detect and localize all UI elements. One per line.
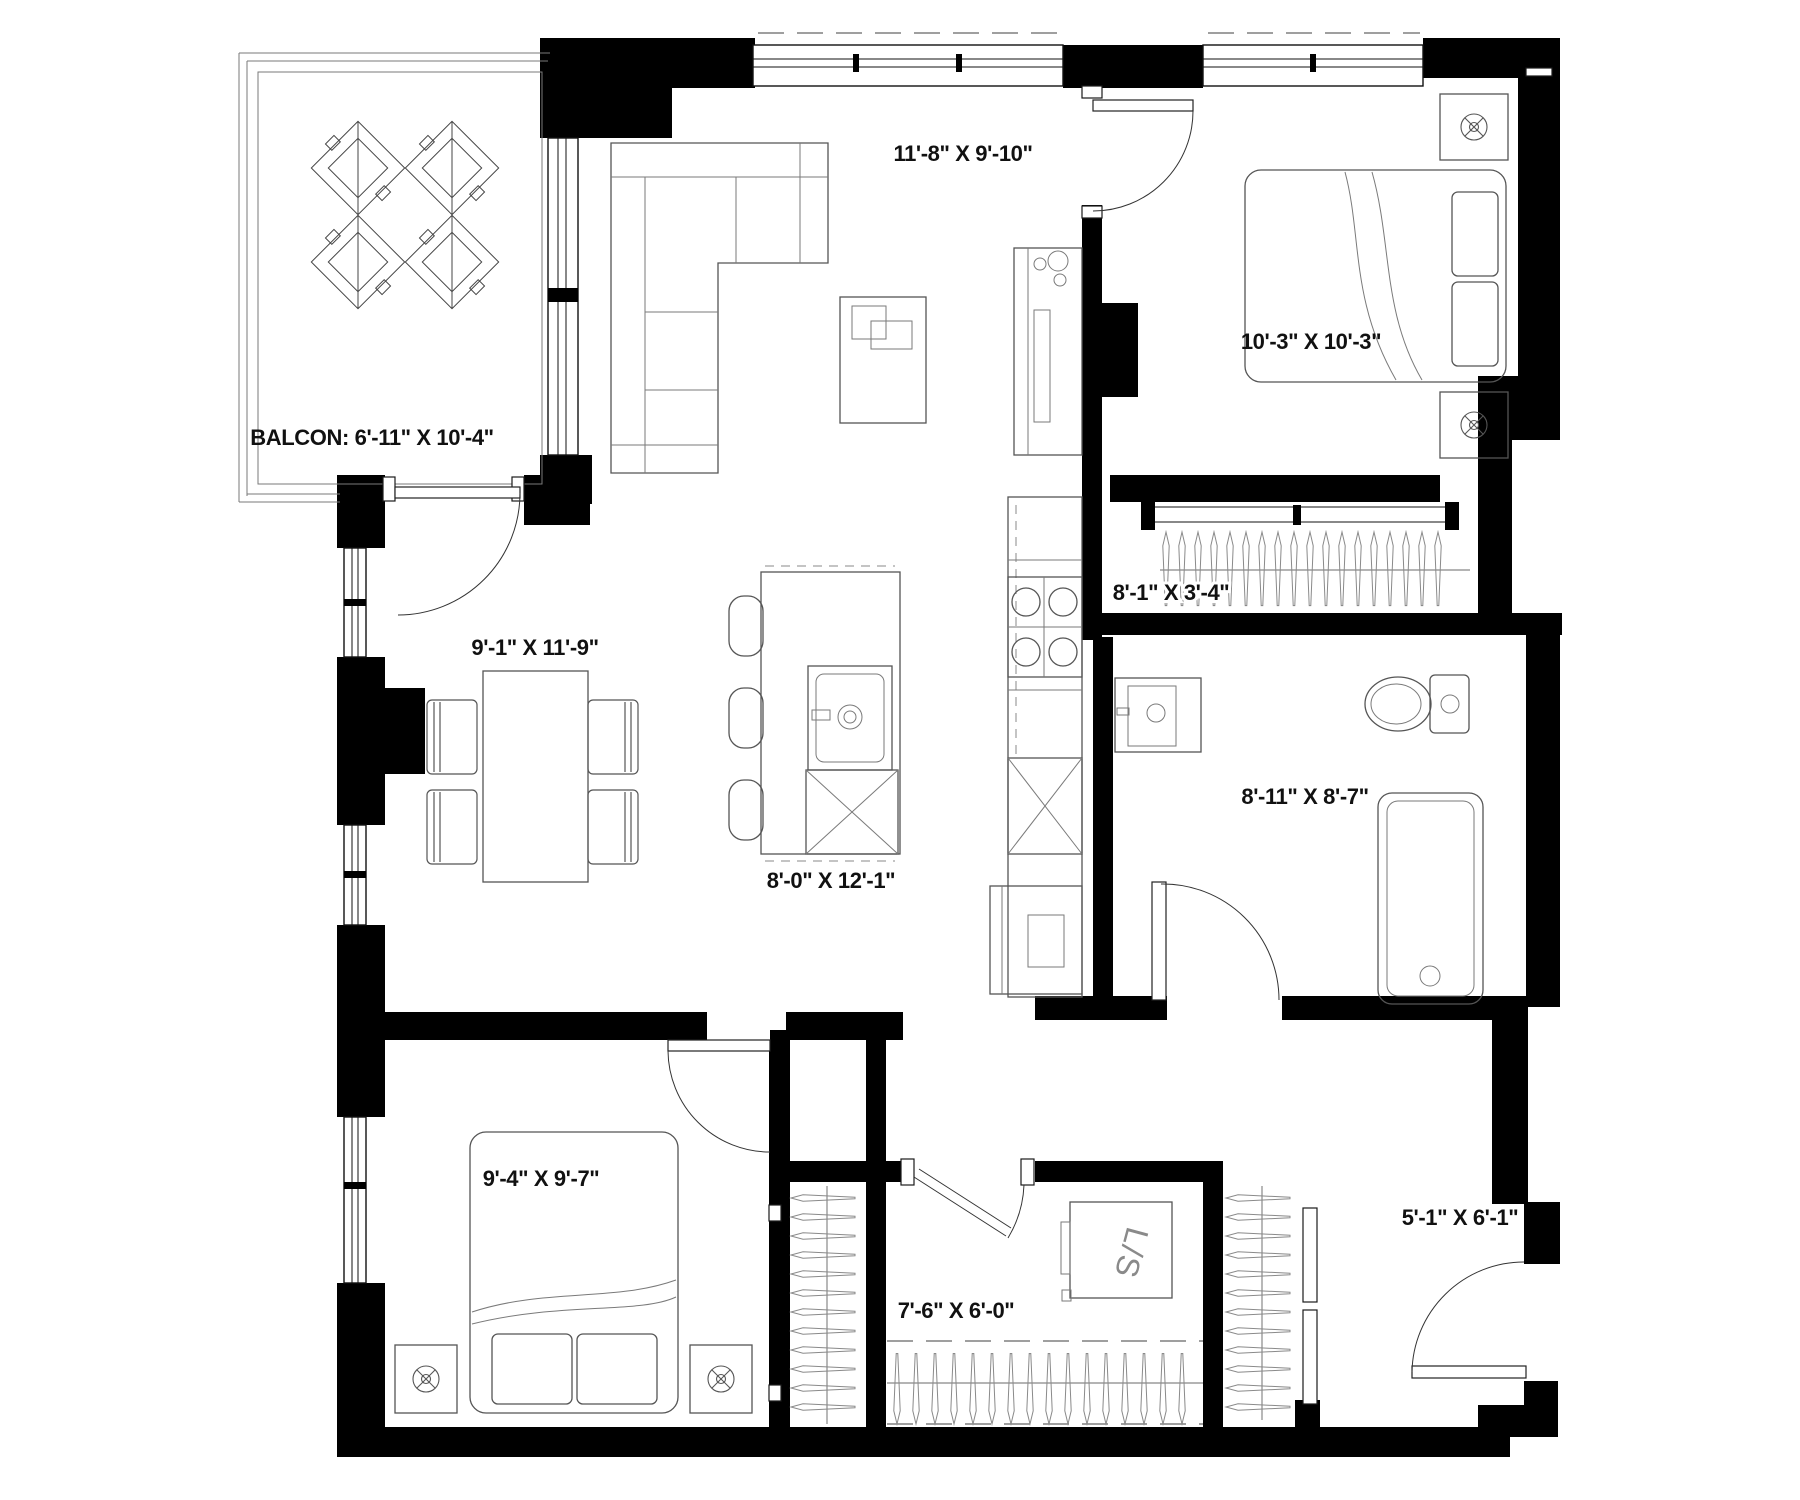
toilet: [1365, 675, 1469, 733]
entry-door: [1412, 1262, 1526, 1378]
bedroom-2: 9'-4" X 9'-7": [395, 1040, 770, 1413]
cabinet: [1008, 758, 1082, 854]
bedroom1-door: [1082, 86, 1193, 218]
wall: [337, 475, 385, 548]
window: [344, 825, 366, 925]
sectional-sofa: [611, 143, 828, 473]
kitchen-tall-counter: [1014, 248, 1082, 455]
entry-door-jamb: [1524, 1202, 1560, 1264]
bedroom2-door: [668, 1040, 770, 1152]
kitchen-label: 8'-0" X 12'-1": [767, 868, 895, 893]
dining-chair: [427, 700, 477, 774]
wall: [1035, 996, 1167, 1020]
wall: [1110, 475, 1440, 502]
bathroom-label: 8'-11" X 8'-7": [1241, 784, 1368, 809]
wall: [337, 1427, 1510, 1457]
living-room: 11'-8" X 9'-10": [611, 141, 1082, 473]
living-room-label: 11'-8" X 9'-10": [893, 141, 1032, 166]
wall: [337, 925, 385, 1117]
wall: [1096, 613, 1478, 635]
dining-label: 9'-1" X 11'-9": [471, 635, 598, 660]
opening-cap: [769, 1205, 781, 1221]
entry-closet: [1226, 1186, 1317, 1420]
nightstand: [1440, 94, 1508, 160]
coffee-table: [840, 297, 926, 423]
wall: [383, 688, 425, 774]
entry: 5'-1" X 6'-1": [1226, 1186, 1526, 1420]
bathroom-door: [1152, 882, 1279, 1000]
wall: [1492, 1020, 1528, 1204]
wall: [769, 1040, 790, 1427]
wall: [1282, 996, 1528, 1020]
dining-table: [483, 671, 588, 882]
kitchen-island: [761, 566, 900, 861]
wall: [383, 1012, 707, 1040]
entry-label: 5'-1" X 6'-1": [1402, 1205, 1519, 1230]
bedroom2-closet: [791, 1186, 855, 1424]
wall: [787, 1161, 903, 1182]
wall: [866, 1035, 886, 1427]
floor-plan-page: BALCON: 6'-11" X 10'-4" 11'-8" X 9'-1: [0, 0, 1800, 1500]
walkin-door: [901, 1159, 1034, 1238]
lamp-icon: [413, 1366, 439, 1392]
walls: [337, 38, 1562, 1457]
bathroom: 8'-11" X 8'-7": [1115, 675, 1483, 1004]
wall: [1478, 376, 1560, 440]
wall: [1203, 1161, 1223, 1427]
vanity-sink: [1115, 678, 1201, 752]
dining-chair: [427, 790, 477, 864]
kitchen-counter: [1008, 497, 1082, 997]
nightstand: [395, 1345, 457, 1413]
walk-in-closet: L/S 7'-6" X 6'-0": [887, 1159, 1203, 1424]
wall: [1096, 303, 1138, 397]
wall: [1063, 45, 1203, 88]
wall: [540, 38, 755, 88]
wall: [337, 657, 385, 825]
balcony-label: BALCON: 6'-11" X 10'-4": [250, 425, 493, 450]
window: [344, 548, 366, 657]
fridge: [990, 886, 1082, 994]
wall: [1526, 613, 1560, 1007]
closet1-label: 8'-1" X 3'-4": [1113, 580, 1230, 605]
washer-dryer-label: L/S: [1108, 1224, 1156, 1283]
closet-door-panel: [1303, 1208, 1317, 1302]
kitchen: 8'-0" X 12'-1": [729, 497, 1082, 997]
balcony-glass-wall: [548, 138, 578, 455]
dining-room: 9'-1" X 11'-9": [427, 635, 638, 882]
wall: [1035, 1161, 1203, 1182]
window: [1203, 33, 1423, 86]
floor-plan-svg: BALCON: 6'-11" X 10'-4" 11'-8" X 9'-1: [0, 0, 1800, 1500]
balcony: BALCON: 6'-11" X 10'-4": [1, 0, 550, 502]
washer-dryer: L/S: [1061, 1202, 1172, 1301]
south-closet: [887, 1341, 1203, 1424]
window: [753, 33, 1063, 86]
bathtub: [1378, 793, 1483, 1004]
dining-chair: [588, 790, 638, 864]
wall: [337, 1283, 385, 1433]
wall: [1518, 38, 1560, 378]
wall: [540, 88, 672, 138]
stove: [1008, 577, 1082, 677]
dining-chair: [588, 700, 638, 774]
wall: [540, 455, 592, 504]
walkin-label: 7'-6" X 6'-0": [898, 1298, 1015, 1323]
closet-door-panel: [1303, 1310, 1317, 1404]
nightstand: [690, 1345, 752, 1413]
bar-stools: [729, 596, 763, 840]
balcony-door: [383, 477, 524, 615]
lamp-icon: [708, 1366, 734, 1392]
bedroom2-label: 9'-4" X 9'-7": [483, 1166, 600, 1191]
doors: [383, 86, 1193, 615]
wall: [1478, 440, 1512, 620]
dishwasher: [806, 770, 898, 854]
bedroom-1: 10'-3" X 10'-3": [1241, 94, 1508, 458]
island-sink: [808, 666, 892, 770]
wall: [1093, 637, 1113, 998]
window-notch: [1526, 68, 1552, 76]
lounge-chairs: [1, 0, 504, 314]
bedroom1-label: 10'-3" X 10'-3": [1241, 329, 1381, 354]
window: [344, 1117, 366, 1283]
lamp-icon: [1461, 114, 1487, 140]
bedroom-closet: 8'-1" X 3'-4": [1113, 502, 1470, 606]
opening-cap: [769, 1385, 781, 1401]
wall: [1082, 205, 1102, 640]
